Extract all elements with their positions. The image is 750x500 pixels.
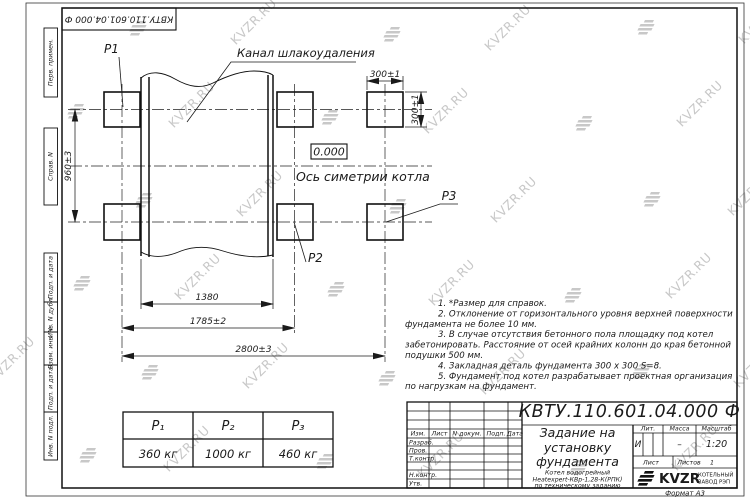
elevation-value: 0.000 [313, 146, 345, 159]
channel-label: Канал шлакоудаления [237, 46, 375, 60]
load-table-header: P₂ [221, 419, 234, 434]
note-line: по нагрузкам на фундамент. [405, 382, 537, 392]
margin-label: Взам. инв. N [48, 328, 55, 369]
note-line: 2. Отклонение от горизонтального уровня … [438, 309, 733, 319]
doc-subtitle-line: по техническому заданию [534, 483, 620, 490]
dim-1380: 1380 [196, 293, 219, 303]
note-line: забетонировать. Расстояние от осей крайн… [405, 341, 731, 351]
tb-col-header: Лист [431, 431, 448, 438]
note-line: подушки 500 мм. [405, 351, 483, 361]
break-line-top [141, 71, 273, 86]
note-line: 1. *Размер для справок. [438, 299, 547, 309]
title-block-lit-mass-scale: Лит. Масса Масштаб И – 1:20 Лист Листов … [635, 425, 732, 467]
centerlines [68, 84, 432, 362]
title-block: КВТУ.110.601.04.000 Ф Изм. Лист N докум.… [407, 402, 740, 490]
drawing-canvas: КВТУ.110.601.04.000 Ф Перв. примен. Спра… [0, 0, 750, 500]
sheets-value: 1 [710, 460, 714, 467]
p2-leader [294, 222, 306, 262]
load-table-value: 1000 кг [205, 447, 252, 461]
load-table-header: P₁ [151, 419, 164, 434]
p1-label: P1 [104, 42, 119, 56]
sheet-label: Лист [642, 460, 659, 467]
mass-label: Масса [669, 426, 689, 433]
note-line: 3. В случае отсутствия бетонного пола пл… [438, 330, 714, 340]
kvzr-logo-icon [635, 471, 656, 486]
margin-label: Подп. и дата [48, 367, 55, 410]
p3-label: P3 [442, 189, 457, 203]
tb-row-label: Т.контр. [409, 456, 436, 463]
company-line1: КОТЕЛЬНЫЙ [698, 472, 733, 479]
dim-300-horizontal: 300±1 [370, 70, 400, 80]
top-designation-text: КВТУ.110.601.04.000 Ф [64, 14, 173, 24]
tb-col-header: N докум. [452, 431, 481, 438]
tb-row-label: Разраб. [409, 439, 434, 447]
margin-label: Подп. и дата [48, 256, 55, 299]
break-line-bottom [141, 247, 273, 257]
p2-label: P2 [308, 251, 323, 265]
company-line2: ЗАВОД РЭП [698, 480, 730, 486]
note-line: 4. Закладная деталь фундамента 300 x 300… [438, 361, 662, 371]
load-table-value: 360 кг [139, 447, 179, 461]
p3-leader [386, 204, 458, 222]
leaders [119, 57, 458, 262]
margin-label: Инв. N подл. [48, 415, 55, 457]
dim-300-vertical: 300±1 [411, 94, 421, 124]
load-table-header: P₃ [291, 419, 304, 434]
load-table: P₁ P₂ P₃ 360 кг 1000 кг 460 кг [123, 412, 333, 467]
note-line: 5. Фундамент под котел разрабатывает про… [438, 372, 732, 382]
title-block-doc-title: Задание на установку фундамента [536, 425, 619, 469]
tb-col-header: Подп. [486, 431, 505, 438]
axis-label: Ось симетрии котла [296, 169, 430, 184]
mass-value: – [677, 440, 682, 450]
company-name: KVZR [659, 471, 701, 487]
tb-row-label: Н.контр. [409, 472, 437, 479]
channel-leader [187, 62, 356, 122]
tb-row-label: Утв. [409, 481, 422, 488]
format-label: Формат А3 [665, 490, 705, 498]
tb-col-header: Изм. [411, 431, 426, 438]
elevation-mark: 0.000 [311, 144, 347, 159]
margin-stamp-labels: Перв. примен. Справ. N Подп. и дата Инв.… [47, 39, 55, 457]
scale-label: Масштаб [702, 425, 732, 433]
title-block-designation: КВТУ.110.601.04.000 Ф [519, 402, 741, 422]
sheets-label: Листов [676, 460, 701, 467]
margin-label: Перв. примен. [48, 39, 55, 86]
note-line: фундамента не более 10 мм. [405, 320, 537, 330]
notes-block: 1. *Размер для справок. 2. Отклонение от… [405, 299, 733, 392]
tb-row-label: Пров. [409, 448, 427, 455]
load-table-value: 460 кг [279, 447, 319, 461]
doc-title-line: Задание на [540, 425, 616, 440]
lit-label: Лит. [640, 426, 656, 433]
margin-label: Справ. N [48, 152, 55, 181]
lit-value: И [635, 440, 642, 450]
dim-960: 960±3 [64, 151, 74, 182]
scale-value: 1:20 [706, 439, 727, 450]
drawing-sheet: KVZR.RUKVZR.RUKVZR.RUKVZR.RUKVZR.RUKVZR.… [0, 0, 750, 500]
title-block-subtitle: Котел водогрейный Heatexpert-КВр-1,28-К(… [533, 470, 623, 490]
doc-title-line: фундамента [536, 454, 619, 469]
doc-subtitle-line: Котел водогрейный [545, 470, 610, 477]
tb-col-header: Дата [506, 431, 523, 438]
p1-leader [119, 57, 123, 107]
slag-channel [141, 71, 273, 257]
doc-title-line: установку [543, 440, 612, 455]
top-designation-box: КВТУ.110.601.04.000 Ф [62, 8, 176, 30]
dim-2800: 2800±3 [235, 345, 271, 355]
dim-1785: 1785±2 [190, 317, 226, 327]
dimensions [75, 76, 427, 356]
company-logo: KVZR КОТЕЛЬНЫЙ ЗАВОД РЭП [635, 471, 733, 487]
